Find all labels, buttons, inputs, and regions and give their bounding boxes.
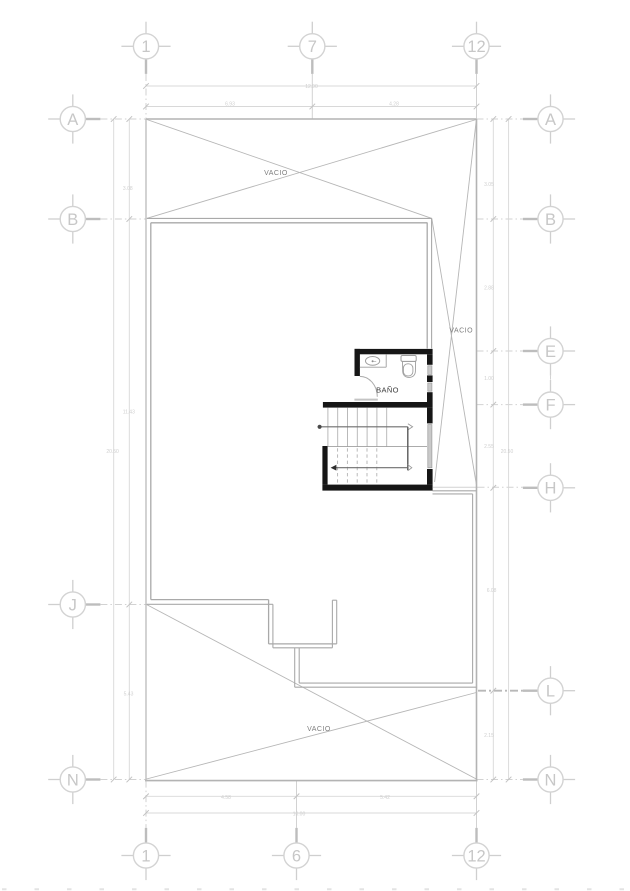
svg-text:5.43: 5.43 — [124, 692, 134, 698]
svg-text:7: 7 — [308, 38, 317, 56]
svg-text:12.90: 12.90 — [305, 84, 318, 90]
svg-text:1: 1 — [141, 847, 150, 865]
svg-text:BAÑO: BAÑO — [376, 385, 399, 394]
svg-text:3.08: 3.08 — [123, 186, 133, 192]
svg-text:VACIO: VACIO — [264, 170, 288, 177]
svg-text:A: A — [545, 111, 556, 129]
svg-text:2.15: 2.15 — [484, 733, 494, 739]
svg-text:6.08: 6.08 — [487, 588, 497, 594]
svg-text:20.50: 20.50 — [106, 449, 119, 455]
svg-text:N: N — [67, 771, 79, 789]
svg-text:B: B — [545, 211, 556, 229]
svg-text:4.28: 4.28 — [389, 101, 399, 107]
svg-text:J: J — [69, 596, 77, 614]
svg-text:6.93: 6.93 — [225, 101, 235, 107]
svg-text:20.50: 20.50 — [501, 449, 514, 455]
svg-text:F: F — [545, 396, 555, 414]
svg-text:10.00: 10.00 — [293, 811, 306, 817]
svg-text:1: 1 — [141, 38, 150, 56]
svg-text:VACIO: VACIO — [307, 726, 331, 733]
svg-text:2.88: 2.88 — [484, 286, 494, 292]
svg-text:2.55: 2.55 — [484, 444, 494, 450]
svg-text:3.05: 3.05 — [484, 182, 494, 188]
svg-text:N: N — [545, 771, 557, 789]
svg-text:H: H — [545, 480, 557, 498]
svg-text:4.58: 4.58 — [221, 795, 231, 801]
svg-text:12: 12 — [467, 38, 485, 56]
svg-text:5.42: 5.42 — [380, 795, 390, 801]
svg-text:11.43: 11.43 — [123, 410, 135, 416]
svg-text:L: L — [546, 683, 555, 701]
svg-text:A: A — [67, 111, 78, 129]
svg-text:6: 6 — [292, 847, 301, 865]
svg-text:VACIO: VACIO — [449, 327, 473, 334]
svg-text:12: 12 — [467, 847, 485, 865]
svg-text:B: B — [67, 211, 78, 229]
svg-text:1.00: 1.00 — [484, 376, 494, 382]
svg-text:E: E — [545, 343, 556, 361]
